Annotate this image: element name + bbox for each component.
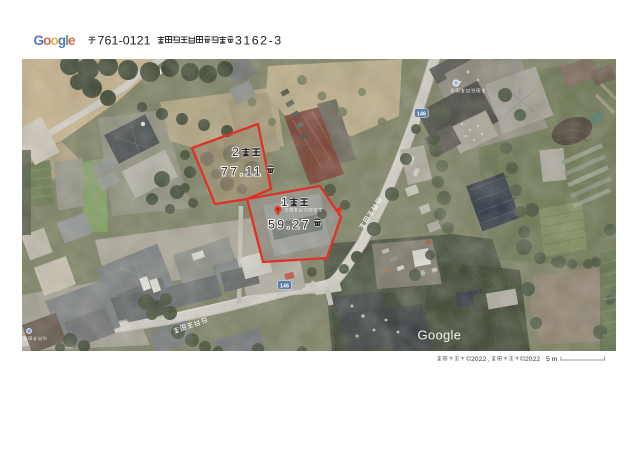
svg-text:©2022 ,: ©2022 ,: [466, 355, 490, 363]
svg-text:761-0121: 761-0121: [98, 34, 151, 48]
svg-text:Google: Google: [418, 328, 462, 343]
svg-text:1: 1: [281, 195, 288, 209]
svg-text:©2022: ©2022: [520, 355, 540, 363]
svg-text:5 m: 5 m: [546, 356, 558, 363]
svg-text:3162-3: 3162-3: [235, 34, 283, 48]
svg-text:2: 2: [232, 145, 239, 159]
svg-text:Google: Google: [34, 33, 77, 48]
svg-text:59.27: 59.27: [268, 218, 311, 232]
svg-text:77.11: 77.11: [221, 165, 263, 179]
svg-text:146: 146: [280, 283, 289, 289]
svg-text:146: 146: [417, 111, 426, 117]
